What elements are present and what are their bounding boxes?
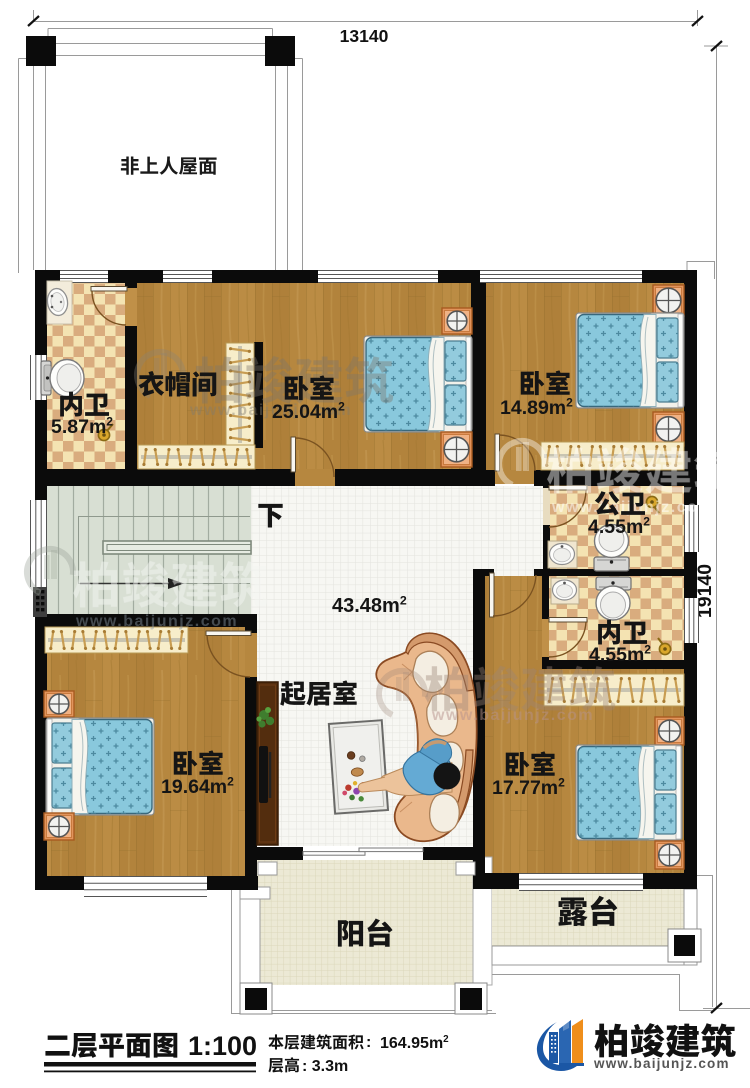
svg-text:1:100: 1:100 — [188, 1031, 257, 1061]
svg-text:43.48m2: 43.48m2 — [332, 593, 407, 617]
svg-text:13140: 13140 — [340, 26, 389, 46]
svg-text:14.89m2: 14.89m2 — [500, 396, 573, 419]
svg-text:www.baijunjz.com: www.baijunjz.com — [431, 707, 594, 724]
svg-text:5.87m2: 5.87m2 — [51, 415, 113, 438]
svg-text:4.55m2: 4.55m2 — [588, 515, 650, 538]
svg-text:: 3.3m: : 3.3m — [302, 1058, 348, 1075]
svg-text:25.04m2: 25.04m2 — [272, 400, 345, 423]
svg-text:19.64m2: 19.64m2 — [161, 775, 234, 798]
svg-text:www.baijunjz.com: www.baijunjz.com — [593, 1056, 730, 1071]
svg-text::: : — [366, 1034, 371, 1051]
svg-text:www.baijunjz.com: www.baijunjz.com — [75, 613, 238, 630]
svg-text:17.77m2: 17.77m2 — [492, 776, 565, 799]
svg-text:164.95m2: 164.95m2 — [380, 1034, 449, 1052]
svg-text:4.55m2: 4.55m2 — [589, 643, 651, 666]
